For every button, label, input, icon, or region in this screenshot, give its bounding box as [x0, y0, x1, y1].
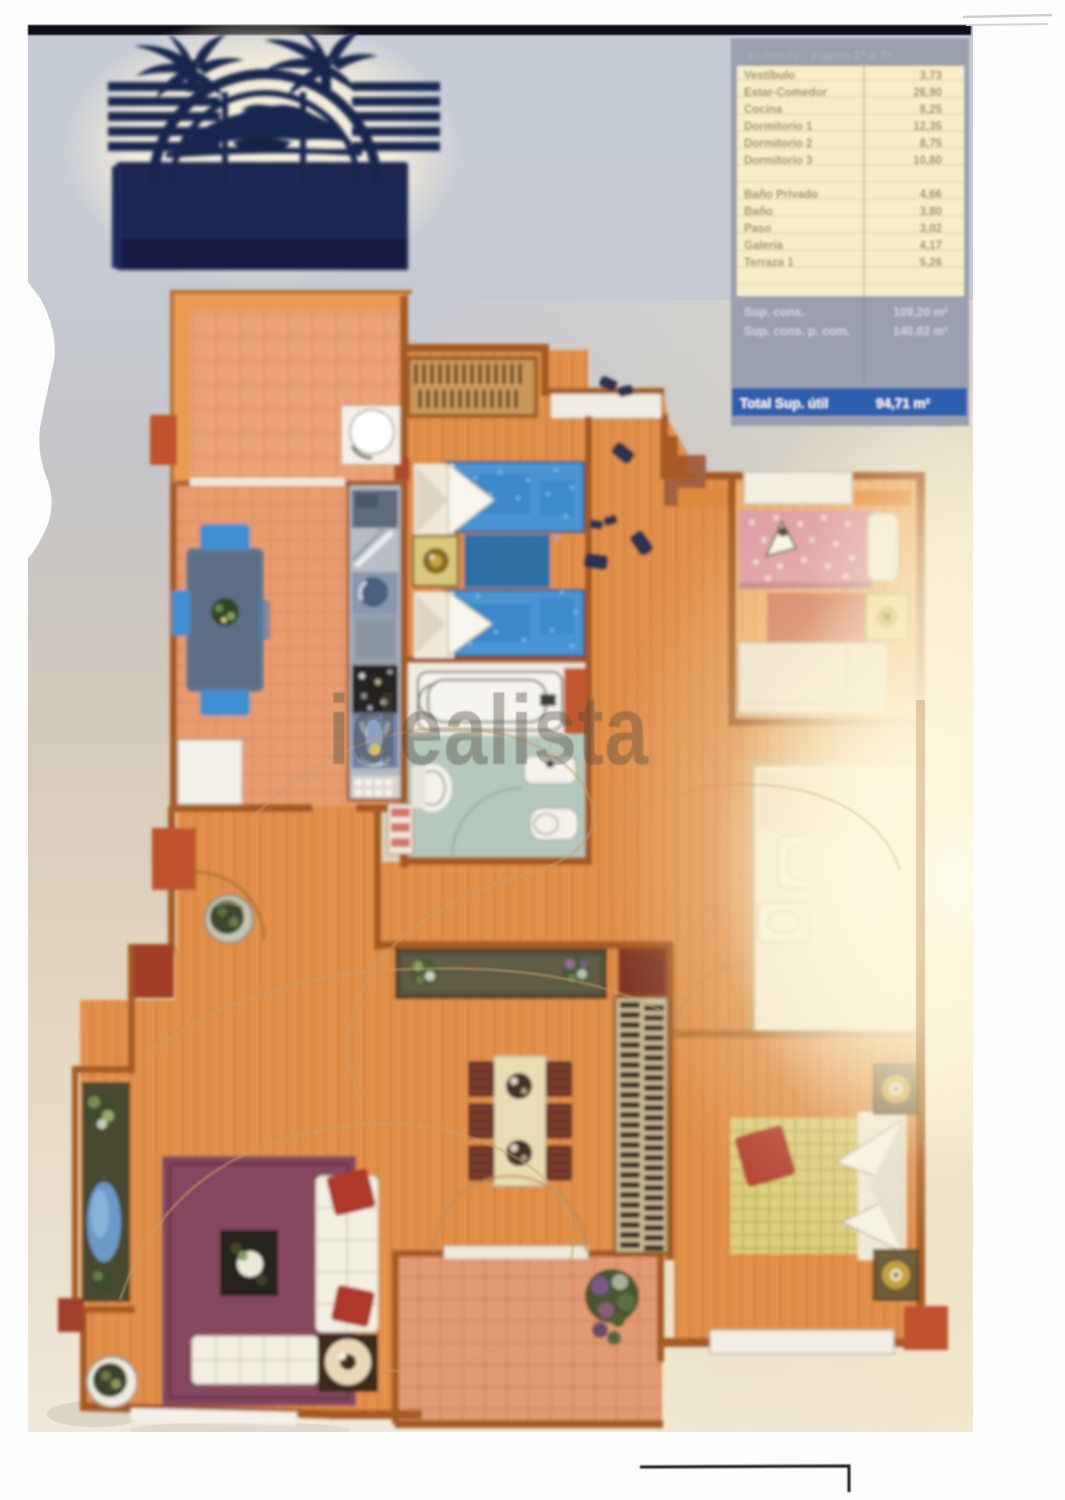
- svg-text:12,35: 12,35: [913, 121, 942, 133]
- svg-text:Total Sup. útil: Total Sup. útil: [740, 396, 828, 411]
- svg-text:Estar-Comedor: Estar-Comedor: [744, 87, 828, 99]
- svg-text:26,90: 26,90: [913, 87, 942, 99]
- svg-text:Galería: Galería: [744, 240, 784, 252]
- svg-text:Paso: Paso: [744, 223, 772, 235]
- svg-text:Cocina: Cocina: [744, 104, 783, 116]
- svg-text:10,80: 10,80: [913, 155, 942, 167]
- svg-text:94,71 m²: 94,71 m²: [876, 396, 931, 411]
- svg-text:Dormitorio 2: Dormitorio 2: [744, 138, 812, 150]
- svg-text:Baño: Baño: [744, 206, 773, 218]
- svg-text:140,82 m²: 140,82 m²: [893, 324, 948, 338]
- svg-text:Sup. cons.: Sup. cons.: [744, 305, 805, 319]
- svg-text:Baño Privado: Baño Privado: [744, 189, 818, 201]
- svg-text:4,66: 4,66: [920, 189, 942, 201]
- svg-text:5,26: 5,26: [920, 257, 942, 269]
- svg-text:3,73: 3,73: [920, 70, 942, 82]
- svg-text:3,80: 3,80: [920, 206, 942, 218]
- svg-text:Sup. cons. p. com.: Sup. cons. p. com.: [744, 324, 850, 338]
- svg-text:8,25: 8,25: [920, 104, 943, 116]
- svg-text:Vestíbulo: Vestíbulo: [744, 70, 795, 82]
- svg-text:4,17: 4,17: [920, 240, 942, 252]
- svg-text:Terraza 1: Terraza 1: [744, 257, 794, 269]
- svg-text:Dormitorio 3: Dormitorio 3: [744, 155, 812, 167]
- svg-text:109,20 m²: 109,20 m²: [893, 305, 948, 319]
- svg-text:Vivienda - Planta 1ª a 7ª: Vivienda - Planta 1ª a 7ª: [746, 48, 892, 63]
- svg-text:Dormitorio 1: Dormitorio 1: [744, 121, 813, 133]
- svg-text:8,75: 8,75: [920, 138, 943, 150]
- svg-text:3,02: 3,02: [920, 223, 942, 235]
- svg-text:idealista: idealista: [328, 676, 649, 785]
